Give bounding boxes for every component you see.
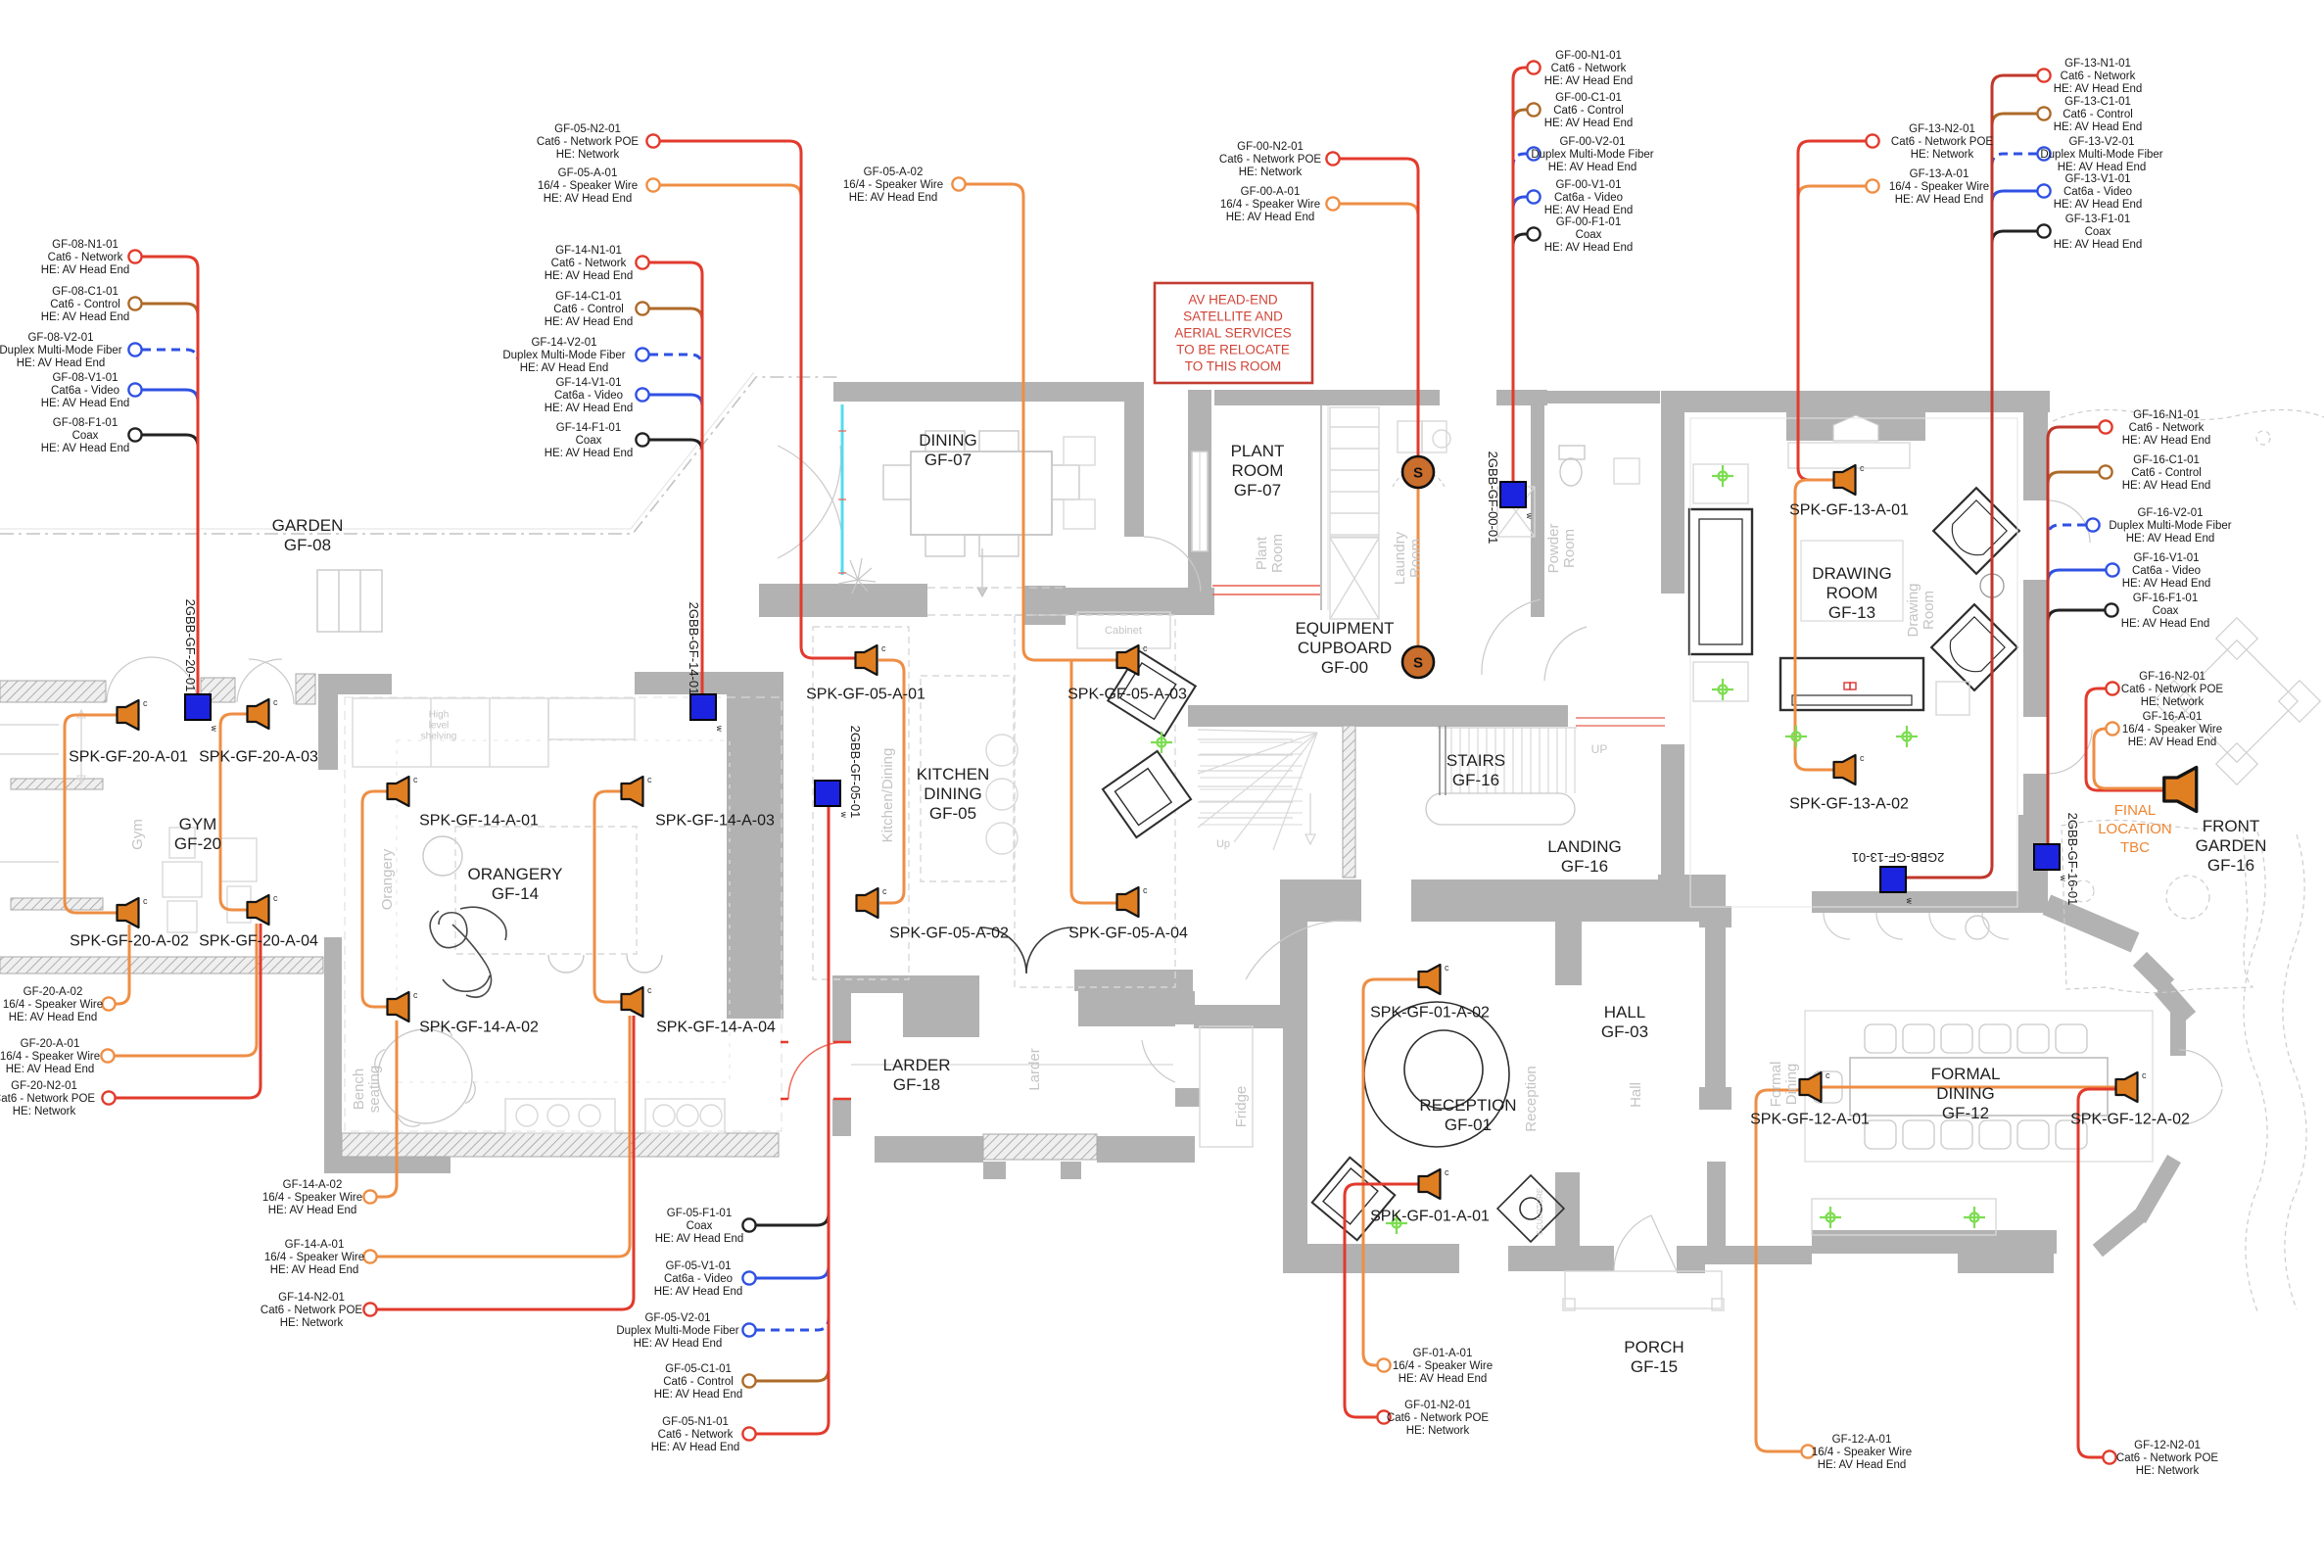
- svg-text:w: w: [1525, 512, 1534, 519]
- svg-text:c: c: [1445, 1167, 1449, 1177]
- svg-text:Drawing: Drawing: [1905, 583, 1921, 637]
- svg-text:c: c: [273, 893, 278, 903]
- svg-text:c: c: [143, 698, 148, 708]
- svg-text:c: c: [1860, 753, 1865, 763]
- svg-text:PLANTROOMGF-07: PLANTROOMGF-07: [1231, 442, 1285, 499]
- svg-text:S: S: [1413, 655, 1423, 672]
- svg-text:Orangery: Orangery: [379, 848, 396, 910]
- svg-text:GF-05-C1-01Cat6 - ControlHE: A: GF-05-C1-01Cat6 - ControlHE: AV Head End: [654, 1363, 743, 1401]
- svg-text:Gym: Gym: [129, 819, 146, 850]
- svg-text:GF-05-V1-01Cat6a - VideoHE: AV: GF-05-V1-01Cat6a - VideoHE: AV Head End: [654, 1260, 743, 1298]
- svg-text:Dining: Dining: [1783, 1064, 1800, 1106]
- svg-text:c: c: [413, 990, 418, 1000]
- svg-text:GF-16-N1-01Cat6 - NetworkHE: A: GF-16-N1-01Cat6 - NetworkHE: AV Head End: [2122, 409, 2211, 447]
- svg-text:GF-13-V1-01Cat6a - VideoHE: AV: GF-13-V1-01Cat6a - VideoHE: AV Head End: [2054, 173, 2143, 211]
- svg-text:Fridge: Fridge: [1233, 1086, 1250, 1128]
- svg-text:GF-00-C1-01Cat6 - ControlHE: A: GF-00-C1-01Cat6 - ControlHE: AV Head End: [1544, 92, 1634, 129]
- svg-text:GF-16-V1-01Cat6a - VideoHE: AV: GF-16-V1-01Cat6a - VideoHE: AV Head End: [2122, 552, 2211, 590]
- svg-text:Room: Room: [1921, 591, 1937, 630]
- svg-text:SPK-GF-05-A-04: SPK-GF-05-A-04: [1068, 926, 1188, 942]
- svg-text:GF-13-C1-01Cat6 - ControlHE: A: GF-13-C1-01Cat6 - ControlHE: AV Head End: [2054, 96, 2143, 133]
- svg-text:Up: Up: [1216, 838, 1230, 850]
- svg-text:c: c: [1143, 885, 1148, 895]
- svg-text:HALLGF-03: HALLGF-03: [1601, 1003, 1648, 1041]
- svg-text:SPK-GF-20-A-02: SPK-GF-20-A-02: [70, 933, 189, 950]
- svg-text:SPK-GF-13-A-01: SPK-GF-13-A-01: [1789, 502, 1909, 519]
- svg-text:GF-13-N1-01Cat6 - NetworkHE: A: GF-13-N1-01Cat6 - NetworkHE: AV Head End: [2054, 58, 2143, 95]
- svg-text:c: c: [1445, 963, 1449, 973]
- svg-text:GF-08-V1-01Cat6a - VideoHE: AV: GF-08-V1-01Cat6a - VideoHE: AV Head End: [41, 372, 130, 409]
- svg-text:SPK-GF-13-A-02: SPK-GF-13-A-02: [1789, 796, 1909, 813]
- svg-text:SCULPTURE: SCULPTURE: [1536, 1188, 1544, 1235]
- svg-text:c: c: [881, 643, 886, 653]
- svg-text:w: w: [839, 811, 848, 818]
- svg-text:PORCHGF-15: PORCHGF-15: [1624, 1338, 1684, 1376]
- svg-text:2GBB-GF-13-01: 2GBB-GF-13-01: [1852, 850, 1945, 865]
- svg-text:Room: Room: [1561, 529, 1578, 568]
- svg-text:AV HEAD-ENDSATELLITE ANDAERIAL: AV HEAD-ENDSATELLITE ANDAERIAL SERVICEST…: [1174, 293, 1291, 374]
- svg-text:GF-14-N1-01Cat6 - NetworkHE: A: GF-14-N1-01Cat6 - NetworkHE: AV Head End: [545, 245, 634, 282]
- svg-text:SPK-GF-14-A-03: SPK-GF-14-A-03: [655, 813, 775, 830]
- svg-text:c: c: [1143, 643, 1148, 653]
- svg-text:c: c: [273, 697, 278, 707]
- svg-text:SPK-GF-01-A-01: SPK-GF-01-A-01: [1370, 1209, 1490, 1225]
- svg-text:GF-14-V1-01Cat6a - VideoHE: AV: GF-14-V1-01Cat6a - VideoHE: AV Head End: [545, 377, 634, 414]
- svg-text:STAIRSGF-16: STAIRSGF-16: [1447, 751, 1505, 789]
- svg-text:c: c: [143, 896, 148, 906]
- svg-text:2GBB-GF-00-01: 2GBB-GF-00-01: [1486, 451, 1500, 545]
- svg-text:UP: UP: [1591, 742, 1608, 756]
- svg-text:w: w: [1905, 897, 1914, 904]
- svg-text:SPK-GF-14-A-04: SPK-GF-14-A-04: [656, 1020, 776, 1036]
- svg-text:Room: Room: [1407, 539, 1424, 578]
- svg-text:Hall: Hall: [1628, 1082, 1644, 1108]
- svg-text:GF-16-C1-01Cat6 - ControlHE: A: GF-16-C1-01Cat6 - ControlHE: AV Head End: [2122, 454, 2211, 492]
- svg-text:GF-00-V1-01Cat6a - VideoHE: AV: GF-00-V1-01Cat6a - VideoHE: AV Head End: [1544, 179, 1634, 216]
- svg-text:Plant: Plant: [1254, 536, 1270, 570]
- svg-text:c: c: [2142, 1070, 2147, 1080]
- svg-text:seating: seating: [366, 1066, 383, 1113]
- svg-text:Room: Room: [1269, 534, 1286, 573]
- svg-text:w: w: [715, 725, 724, 732]
- svg-text:Laundry: Laundry: [1392, 531, 1408, 585]
- svg-text:Bench: Bench: [351, 1069, 367, 1111]
- svg-text:Larder: Larder: [1026, 1048, 1043, 1090]
- svg-text:c: c: [1826, 1070, 1830, 1080]
- svg-text:GYMGF-20: GYMGF-20: [174, 815, 221, 853]
- svg-text:Kitchen/Dining: Kitchen/Dining: [879, 748, 896, 843]
- svg-text:SPK-GF-20-A-04: SPK-GF-20-A-04: [199, 933, 318, 950]
- svg-text:S: S: [1413, 465, 1423, 482]
- svg-text:2GBB-GF-16-01: 2GBB-GF-16-01: [2065, 813, 2080, 906]
- svg-text:2GBB-GF-05-01: 2GBB-GF-05-01: [848, 726, 863, 819]
- svg-text:SPK-GF-20-A-03: SPK-GF-20-A-03: [199, 749, 318, 766]
- svg-text:SPK-GF-14-A-01: SPK-GF-14-A-01: [419, 813, 539, 830]
- svg-text:GF-00-N1-01Cat6 - NetworkHE: A: GF-00-N1-01Cat6 - NetworkHE: AV Head End: [1544, 50, 1634, 87]
- svg-text:SPK-GF-05-A-01: SPK-GF-05-A-01: [806, 687, 925, 703]
- svg-text:Formal: Formal: [1768, 1062, 1784, 1108]
- svg-text:c: c: [1860, 463, 1865, 473]
- svg-text:SPK-GF-12-A-02: SPK-GF-12-A-02: [2070, 1112, 2190, 1128]
- svg-text:SPK-GF-12-A-01: SPK-GF-12-A-01: [1750, 1112, 1870, 1128]
- svg-text:SPK-GF-14-A-02: SPK-GF-14-A-02: [419, 1020, 539, 1036]
- svg-text:c: c: [882, 886, 887, 896]
- svg-text:2GBB-GF-20-01: 2GBB-GF-20-01: [183, 599, 198, 692]
- svg-text:GF-08-C1-01Cat6 - ControlHE: A: GF-08-C1-01Cat6 - ControlHE: AV Head End: [41, 286, 130, 323]
- svg-text:SPK-GF-01-A-02: SPK-GF-01-A-02: [1370, 1005, 1490, 1022]
- svg-text:SPK-GF-05-A-02: SPK-GF-05-A-02: [889, 926, 1009, 942]
- svg-text:w: w: [210, 725, 218, 732]
- svg-text:Reception: Reception: [1523, 1066, 1540, 1132]
- svg-text:SPK-GF-05-A-03: SPK-GF-05-A-03: [1067, 687, 1187, 703]
- svg-text:GF-05-N1-01Cat6 - NetworkHE: A: GF-05-N1-01Cat6 - NetworkHE: AV Head End: [651, 1416, 740, 1453]
- svg-text:c: c: [647, 985, 652, 995]
- svg-text:2GBB-GF-14-01: 2GBB-GF-14-01: [687, 602, 701, 695]
- svg-text:GF-14-C1-01Cat6 - ControlHE: A: GF-14-C1-01Cat6 - ControlHE: AV Head End: [545, 291, 634, 328]
- svg-text:DININGGF-07: DININGGF-07: [919, 431, 977, 469]
- svg-text:GF-08-N1-01Cat6 - NetworkHE: A: GF-08-N1-01Cat6 - NetworkHE: AV Head End: [41, 239, 130, 276]
- svg-text:Powder: Powder: [1545, 524, 1562, 574]
- svg-text:SPK-GF-20-A-01: SPK-GF-20-A-01: [69, 749, 188, 766]
- svg-text:c: c: [413, 775, 418, 784]
- svg-text:Cabinet: Cabinet: [1105, 625, 1142, 637]
- svg-text:c: c: [647, 775, 652, 784]
